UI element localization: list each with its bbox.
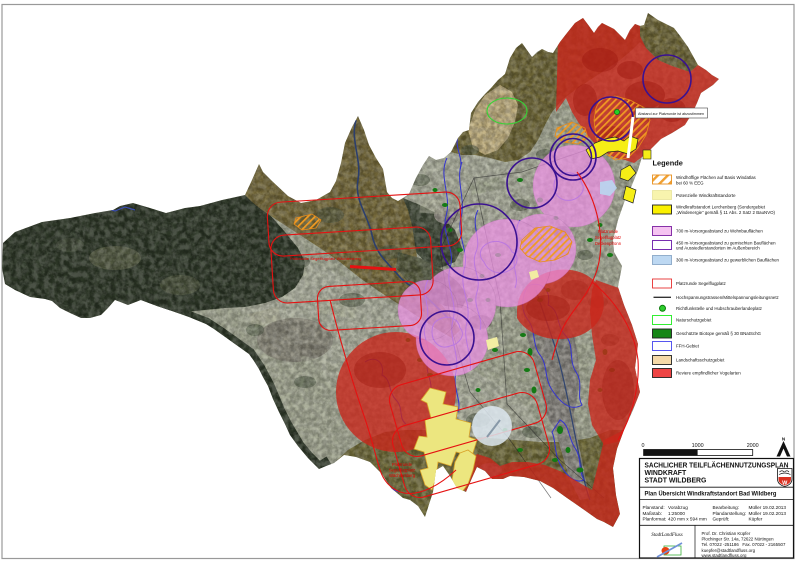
svg-text:Geprüft:: Geprüft:	[713, 517, 730, 522]
svg-text:Richtfunkstelle und Hubschraub: Richtfunkstelle und Hubschrauberlandepla…	[676, 306, 762, 311]
svg-text:Müller 19.02.2013: Müller 19.02.2013	[749, 505, 787, 510]
svg-text:WINDKRAFT: WINDKRAFT	[645, 470, 688, 477]
svg-text:2000: 2000	[747, 443, 759, 449]
svg-text:Legende: Legende	[653, 159, 683, 168]
svg-text:FFH-Gebiet: FFH-Gebiet	[676, 344, 700, 349]
svg-text:Reviere empfindlicher Vogelart: Reviere empfindlicher Vogelarten	[676, 371, 741, 376]
svg-text:Naturschutzgebiet: Naturschutzgebiet	[676, 318, 712, 323]
svg-text:Prof. Dr. Christian Küpfer: Prof. Dr. Christian Küpfer	[702, 531, 751, 536]
svg-text:700 m-Vorsorgeabstand zu Wohnb: 700 m-Vorsorgeabstand zu Wohnbauflächen	[676, 229, 763, 234]
svg-text:www.stadtlandfluss.org: www.stadtlandfluss.org	[702, 553, 747, 558]
svg-text:Platzrunde Segelflugplatz: Platzrunde Segelflugplatz	[676, 281, 726, 286]
svg-text:„Windenergie“ gemäß § 11 Abs.: „Windenergie“ gemäß § 11 Abs. 2 Satz 2 B…	[676, 210, 776, 215]
svg-text:Potenzielle Windkraftstandorte: Potenzielle Windkraftstandorte	[676, 193, 736, 198]
svg-text:bei 60 % EEG: bei 60 % EEG	[676, 180, 704, 185]
svg-text:Maßstab:: Maßstab:	[643, 511, 663, 516]
svg-text:Vorabzug: Vorabzug	[668, 505, 688, 510]
svg-text:kuepfer@stadtlandfluss.org: kuepfer@stadtlandfluss.org	[702, 548, 756, 553]
svg-text:Landschaftsschutzgebiet: Landschaftsschutzgebiet	[676, 358, 725, 363]
svg-text:300 m-Vorsorgeabstand zu gewer: 300 m-Vorsorgeabstand zu gewerblichen Ba…	[676, 258, 780, 263]
svg-text:Windkraftstandort Lerchenberg: Windkraftstandort Lerchenberg (Sondergeb…	[676, 205, 766, 210]
svg-text:Plan Übersicht Windkraftstando: Plan Übersicht Windkraftstandort Bad Wil…	[645, 489, 777, 498]
svg-text:Deckenpfronn: Deckenpfronn	[595, 241, 622, 246]
svg-text:1:25000: 1:25000	[668, 511, 685, 516]
svg-text:Planstand:: Planstand:	[643, 505, 665, 510]
svg-text:STADT WILDBERG: STADT WILDBERG	[645, 478, 707, 485]
svg-text:Segelflugplatz: Segelflugplatz	[389, 468, 415, 473]
svg-text:Platzrunde: Platzrunde	[598, 229, 619, 234]
svg-text:und Aussiedlerstandorten im Au: und Aussiedlerstandorten im Außenbereich	[676, 246, 760, 251]
svg-text:SACHLICHER TEILFLÄCHENNUTZUNGS: SACHLICHER TEILFLÄCHENNUTZUNGSPLAN	[645, 461, 789, 469]
svg-text:Geschützte Biotope gemäß § 30: Geschützte Biotope gemäß § 30 BNatSchG	[676, 331, 762, 336]
svg-text:Segelflugplatz: Segelflugplatz	[595, 235, 621, 240]
svg-text:Platzrunde: Platzrunde	[392, 462, 413, 467]
svg-text:Küpfer: Küpfer	[749, 517, 763, 522]
svg-text:Plochinger Str. 14a, 72622 Nür: Plochinger Str. 14a, 72622 Nürtingen	[702, 537, 775, 542]
svg-text:450 m-Vorsorgeabstand zu gemis: 450 m-Vorsorgeabstand zu gemischten Bauf…	[676, 240, 776, 245]
svg-text:0: 0	[642, 443, 645, 449]
svg-text:Hochspannungstrassen/Mittelspa: Hochspannungstrassen/Mittelspannungsleit…	[676, 295, 779, 300]
svg-text:Platzrunde Segelflugplatz Wäch: Platzrunde Segelflugplatz Wächtersberg	[290, 256, 361, 261]
svg-text:W: W	[782, 480, 788, 486]
svg-text:420 mm x 594 mm: 420 mm x 594 mm	[668, 517, 707, 522]
svg-text:Plandarstellung:: Plandarstellung:	[713, 511, 747, 516]
svg-text:Müller 19.02.2013: Müller 19.02.2013	[749, 511, 787, 516]
svg-text:Tel. 07022 -251186 Fax. 0702: Tel. 07022 -251186 Fax. 07022 - 2165507	[702, 542, 786, 547]
svg-text:Abstand zur Platzrunde ist abz: Abstand zur Platzrunde ist abzustimmen	[638, 112, 704, 116]
svg-text:Wächtersberg: Wächtersberg	[389, 473, 416, 478]
svg-text:1000: 1000	[692, 443, 704, 449]
svg-text:Bearbeitung:: Bearbeitung:	[713, 505, 740, 510]
svg-text:StadtLandFluss: StadtLandFluss	[651, 533, 682, 538]
svg-text:Planformat:: Planformat:	[643, 517, 667, 522]
svg-text:Windhöffige Flächen auf Basis: Windhöffige Flächen auf Basis Windatlas	[676, 175, 757, 180]
